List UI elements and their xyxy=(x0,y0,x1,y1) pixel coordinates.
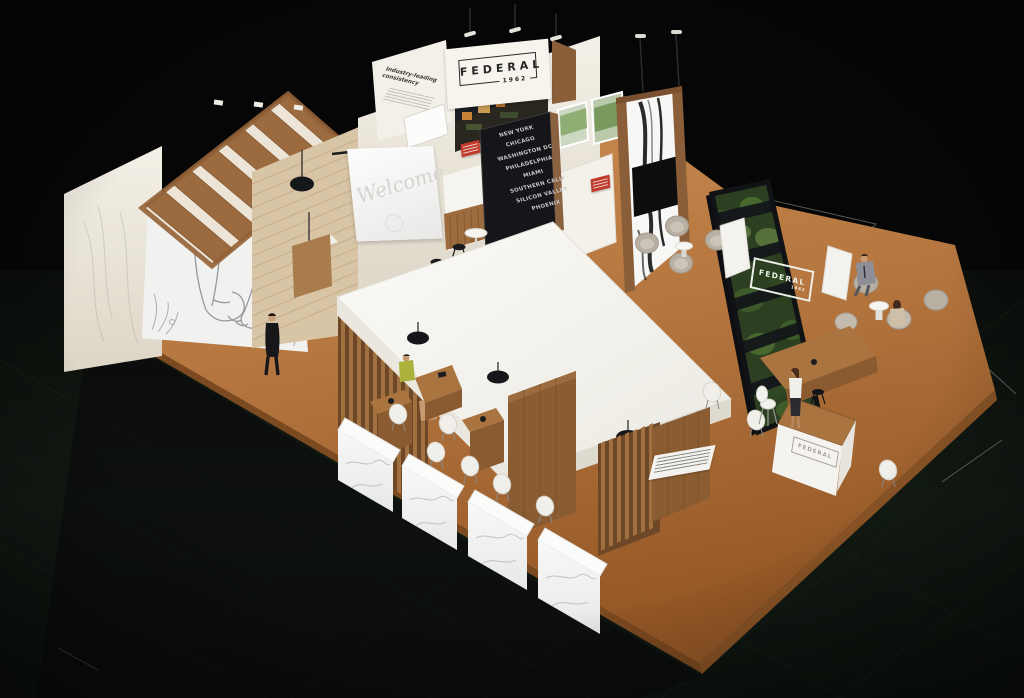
welcome-banner: Welcome xyxy=(347,146,443,241)
brand-name: FEDERAL xyxy=(758,267,806,287)
federal-logo-box: FEDERAL 1962 xyxy=(458,52,537,86)
vignette xyxy=(0,0,1024,698)
coffee-sketch-icon xyxy=(384,214,404,233)
brand-name: FEDERAL xyxy=(460,57,544,79)
brand-year: 1962 xyxy=(499,75,530,85)
federal-header-sign: FEDERAL 1962 xyxy=(445,39,552,110)
booth-3d-render: FEDERAL 1962 Industry-leading consistenc… xyxy=(0,0,1024,698)
scene-canvas xyxy=(0,0,1024,698)
welcome-text: Welcome xyxy=(353,162,439,207)
